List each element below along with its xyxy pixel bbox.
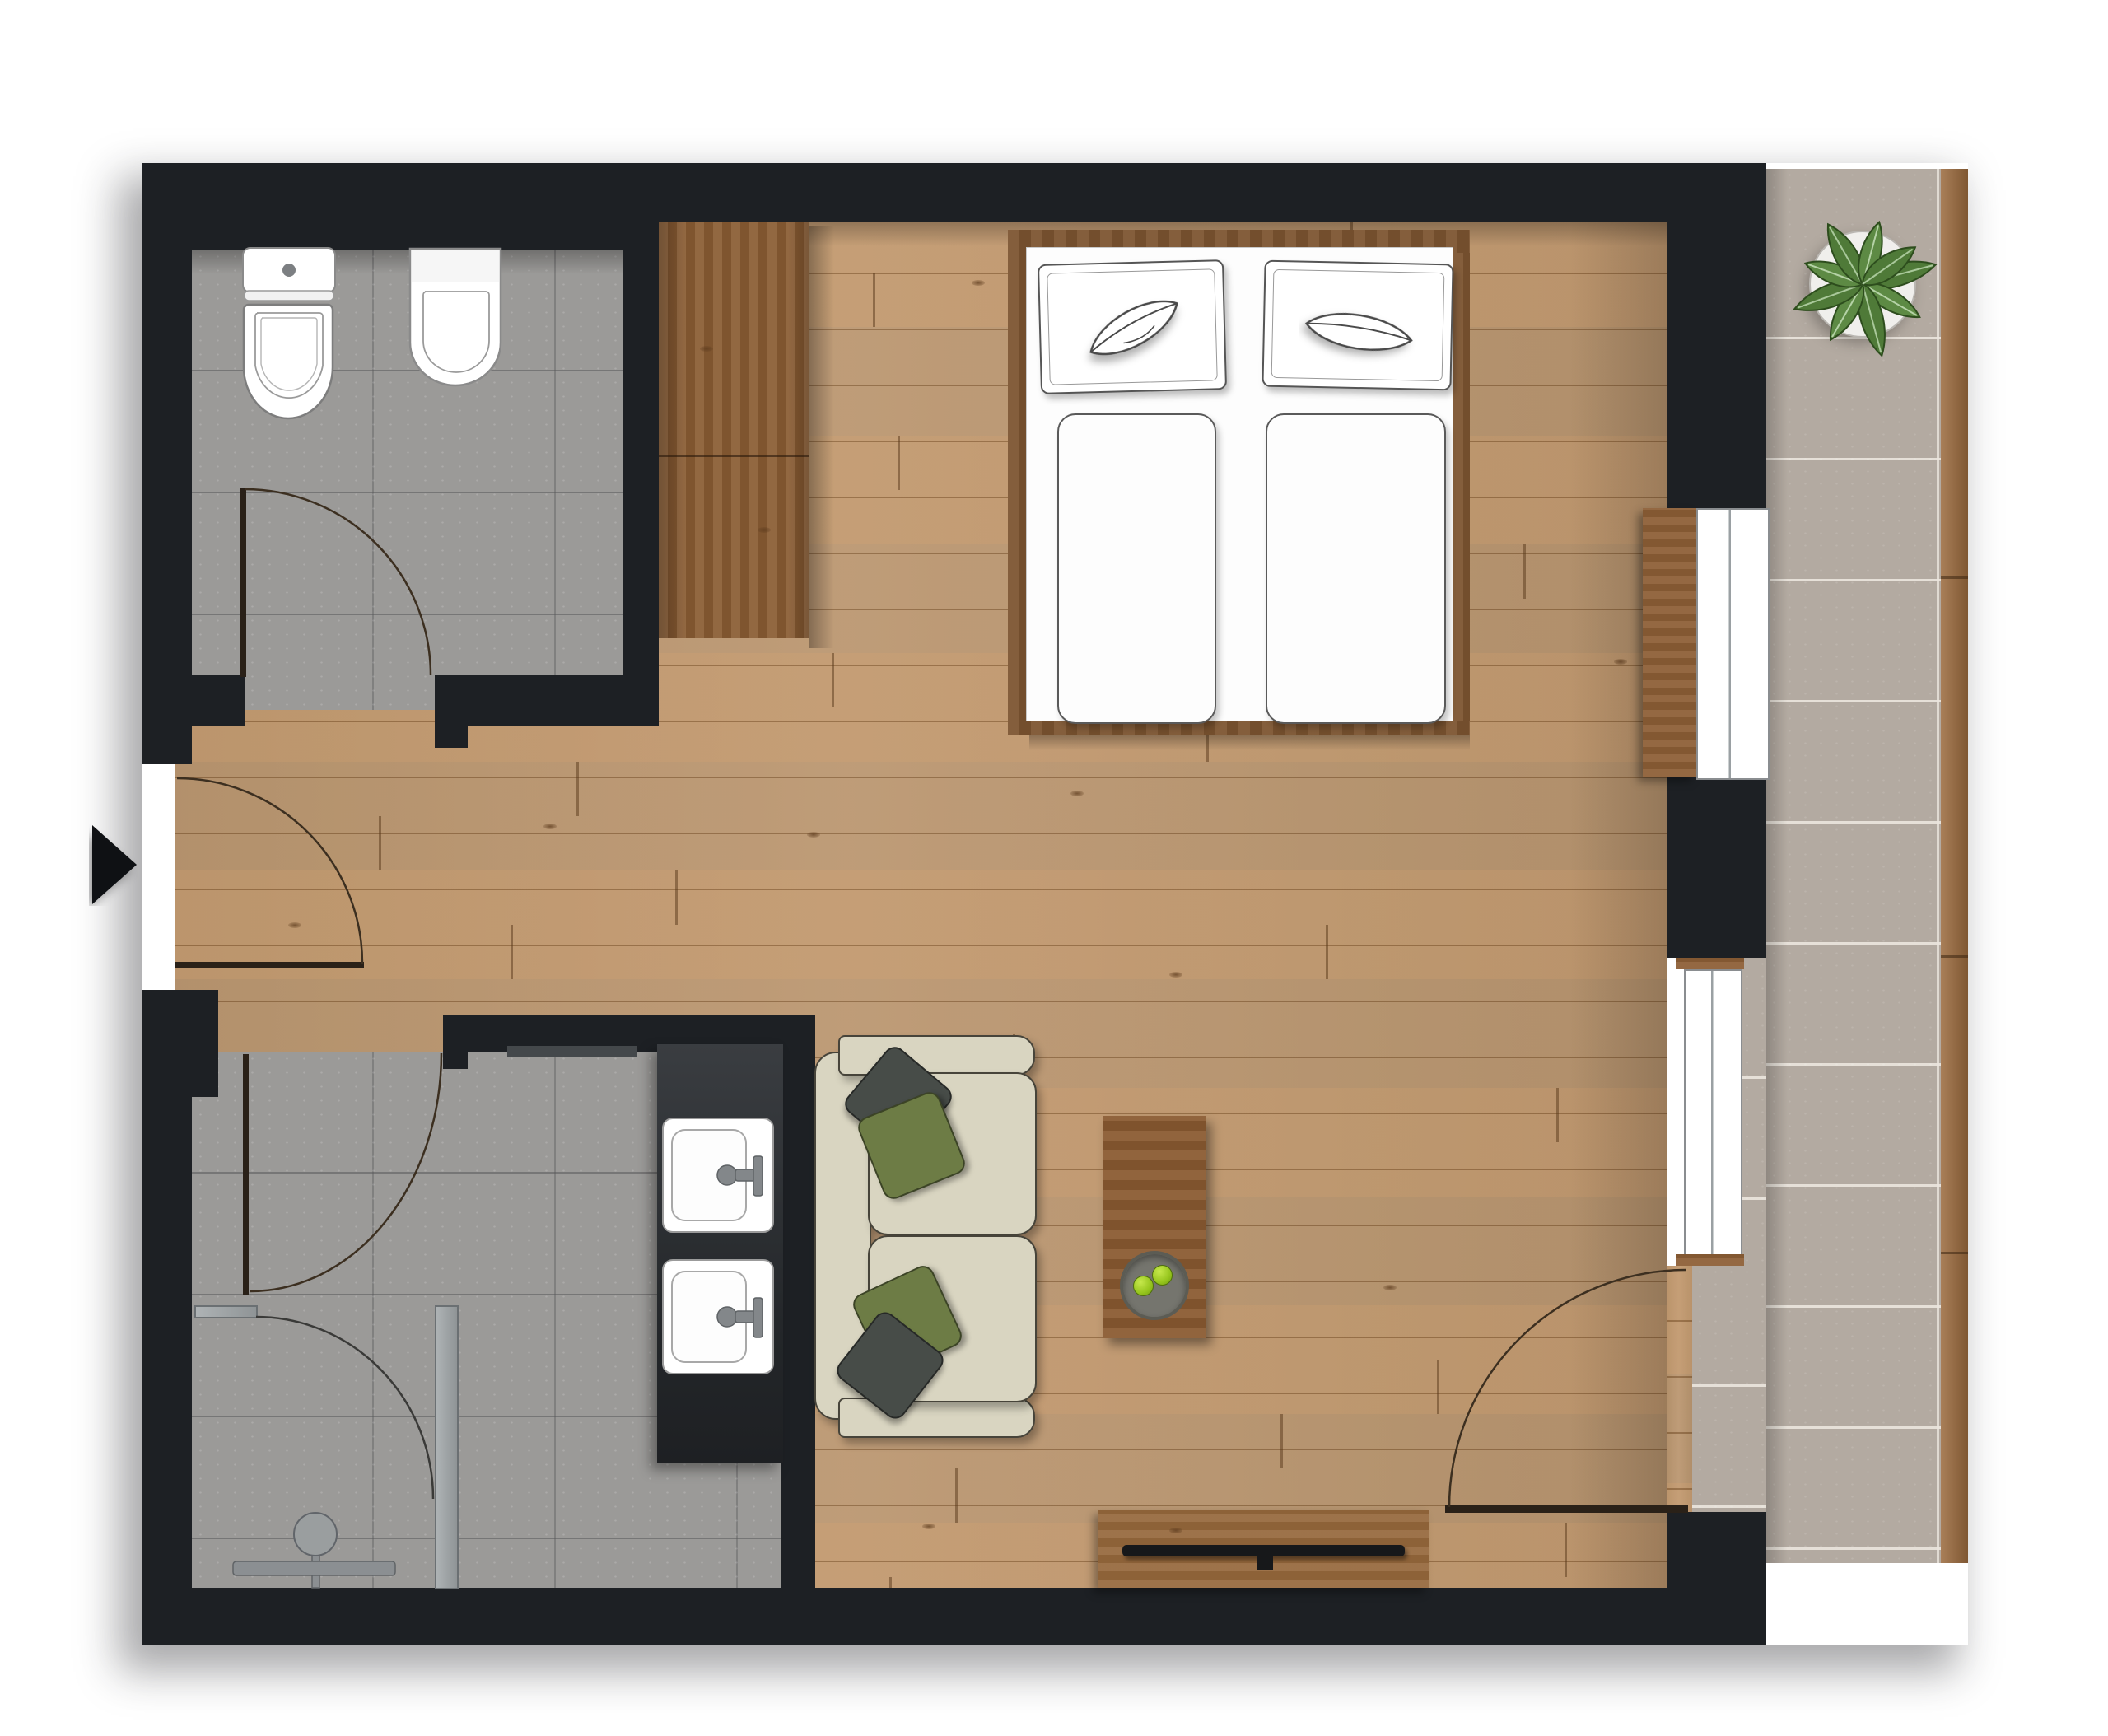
plank-seam (675, 870, 678, 925)
wall-left-upper (142, 163, 192, 764)
tv-mount (1257, 1556, 1273, 1570)
door-jamb (435, 726, 468, 748)
lips-motif-cushion (1299, 292, 1420, 373)
wood-knot (1169, 972, 1182, 978)
plank-seam (1565, 1523, 1567, 1577)
shower-glass-partition (194, 1305, 258, 1318)
bed-frame-rail (1008, 253, 1026, 735)
floor-plan (0, 0, 2108, 1736)
wall-bathroom-top-right (623, 222, 659, 726)
wood-knot (1070, 791, 1084, 796)
plank-seam (832, 653, 834, 707)
wardrobe (659, 220, 809, 638)
wood-knot (922, 1524, 935, 1529)
vanity-shelf (507, 1046, 637, 1057)
bed-duvet (1266, 413, 1446, 724)
plank-seam (873, 273, 875, 327)
bed-duvet (1057, 413, 1216, 724)
tv-screen (1122, 1545, 1405, 1556)
balcony-door-threshold-tile (1692, 1266, 1766, 1512)
bed-pillow (1038, 259, 1227, 394)
plank-seam (1326, 925, 1328, 979)
plank-seam (955, 1468, 958, 1523)
wall-left-lower (142, 990, 192, 1645)
plant-icon (1780, 202, 1945, 366)
wall-right-lower (1667, 1512, 1766, 1588)
plank-seam (1556, 1088, 1559, 1142)
window-2-glazing (1684, 969, 1742, 1258)
sofa-armrest (838, 1035, 1035, 1076)
bed-pillow (1262, 260, 1453, 391)
toilet-with-cistern (237, 244, 341, 430)
wall-top (142, 163, 1766, 222)
wood-knot (758, 527, 771, 533)
sink (661, 1255, 781, 1379)
bathroom-bottom-door-swing-arc (249, 1052, 443, 1293)
wall-right-upper (1667, 163, 1766, 508)
plank-seam (889, 1577, 892, 1588)
deck-seam (1941, 576, 1968, 579)
sink (661, 1113, 781, 1237)
deck-seam (1941, 955, 1968, 958)
balcony-tile-floor (1739, 958, 1766, 1266)
balcony-door-swing-arc (1448, 1268, 1688, 1509)
wall-hung-toilet (405, 244, 506, 399)
wood-knot (1614, 659, 1627, 665)
shower-glass-door-swing-arc (254, 1315, 435, 1500)
vanity-counter (657, 1044, 783, 1463)
deck-seam (1941, 1252, 1968, 1254)
apple (1133, 1276, 1154, 1296)
window-2-frame (1676, 958, 1744, 969)
window-2-frame (1676, 1254, 1744, 1266)
shower-glass-partition (435, 1305, 459, 1589)
wood-knot (807, 832, 820, 838)
wood-knot (972, 280, 985, 286)
balcony-tile-floor (1766, 169, 1941, 1563)
plank-seam (898, 436, 900, 490)
wall-right-pillar (1667, 777, 1766, 958)
window-1-glazing (1696, 508, 1770, 780)
plank-seam (379, 816, 381, 870)
wall-bottom (142, 1588, 1766, 1645)
apple (1152, 1265, 1173, 1286)
sofa-armrest (838, 1398, 1035, 1438)
door-jamb (443, 1052, 468, 1069)
plank-seam (1523, 544, 1526, 599)
balcony-deck-board (1941, 169, 1968, 1563)
wall-bathroom-bottom-right (781, 1015, 815, 1588)
entry-door-swing-arc (175, 777, 364, 965)
plank-seam (511, 925, 513, 979)
wood-knot (543, 824, 557, 829)
wall-bathroom-top-bottom (192, 675, 245, 726)
window-console (1643, 508, 1696, 777)
bed-frame-rail (1452, 253, 1470, 735)
leaf-motif-cushion (1070, 277, 1196, 379)
bathroom-top-door-swing-arc (243, 488, 432, 677)
door-jamb (192, 990, 218, 1097)
wardrobe-seam (659, 455, 809, 457)
wood-knot (1169, 1528, 1182, 1533)
fruit-bowl (1120, 1251, 1189, 1320)
bathroom-bottom-door-leaf (243, 1054, 249, 1295)
wood-knot (700, 346, 713, 352)
plank-seam (576, 762, 579, 816)
entry-arrow-icon (89, 824, 138, 906)
wood-knot (1383, 1285, 1397, 1290)
plank-seam (1437, 1360, 1439, 1414)
shower-head-icon (218, 1507, 408, 1589)
plank-seam (1280, 1414, 1283, 1468)
